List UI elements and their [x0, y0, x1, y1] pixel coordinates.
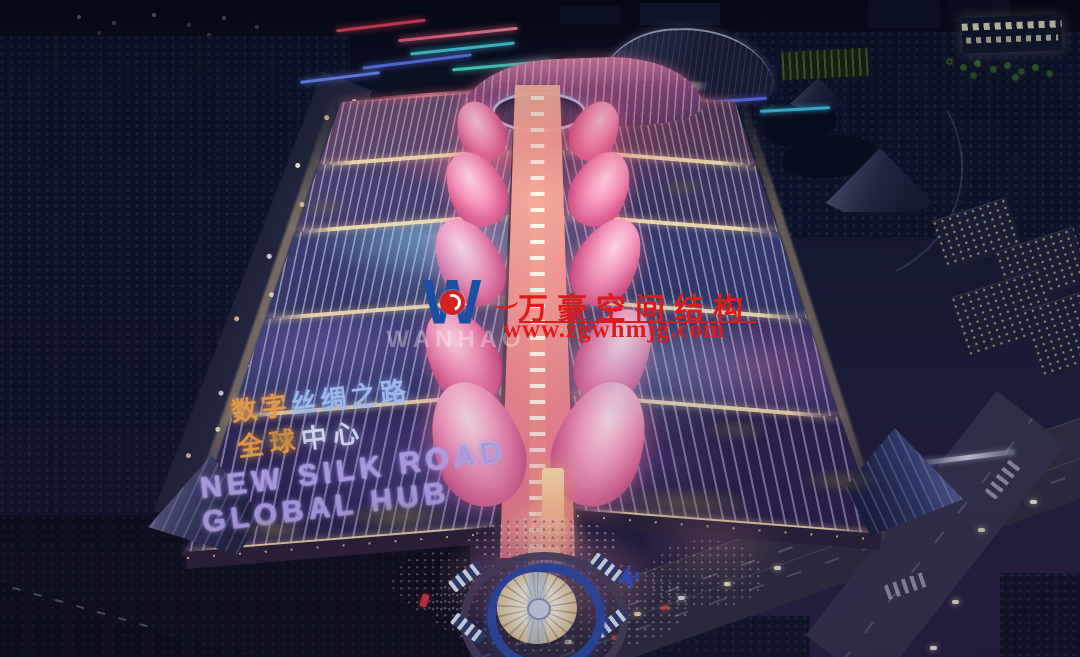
crowd	[645, 540, 765, 610]
lit-trees	[298, 198, 350, 216]
car	[930, 646, 937, 650]
car	[1030, 500, 1037, 504]
corner-trees	[1000, 573, 1080, 657]
lit-trees	[658, 178, 710, 196]
dome-cap	[527, 598, 551, 620]
aerial-night-render: 数字丝绸之路 全球中心 NEW SILK ROAD GLOBAL HUB ✈ W…	[0, 0, 1080, 657]
lit-trees	[338, 500, 460, 534]
distant-building	[868, 0, 940, 28]
lit-trees	[798, 468, 880, 494]
lit-trees	[608, 486, 760, 520]
highway-car-lights	[367, 89, 371, 93]
lit-office-building	[961, 14, 1062, 53]
lit-trees	[248, 428, 310, 450]
lit-tree-row	[948, 60, 951, 63]
distant-building	[640, 3, 720, 25]
car	[952, 600, 959, 604]
distant-city-lights	[58, 8, 60, 10]
lit-trees	[238, 518, 310, 542]
cyan-light-bloom	[330, 205, 530, 325]
distant-building	[560, 6, 620, 24]
lit-trees	[700, 418, 772, 442]
car	[978, 528, 985, 532]
